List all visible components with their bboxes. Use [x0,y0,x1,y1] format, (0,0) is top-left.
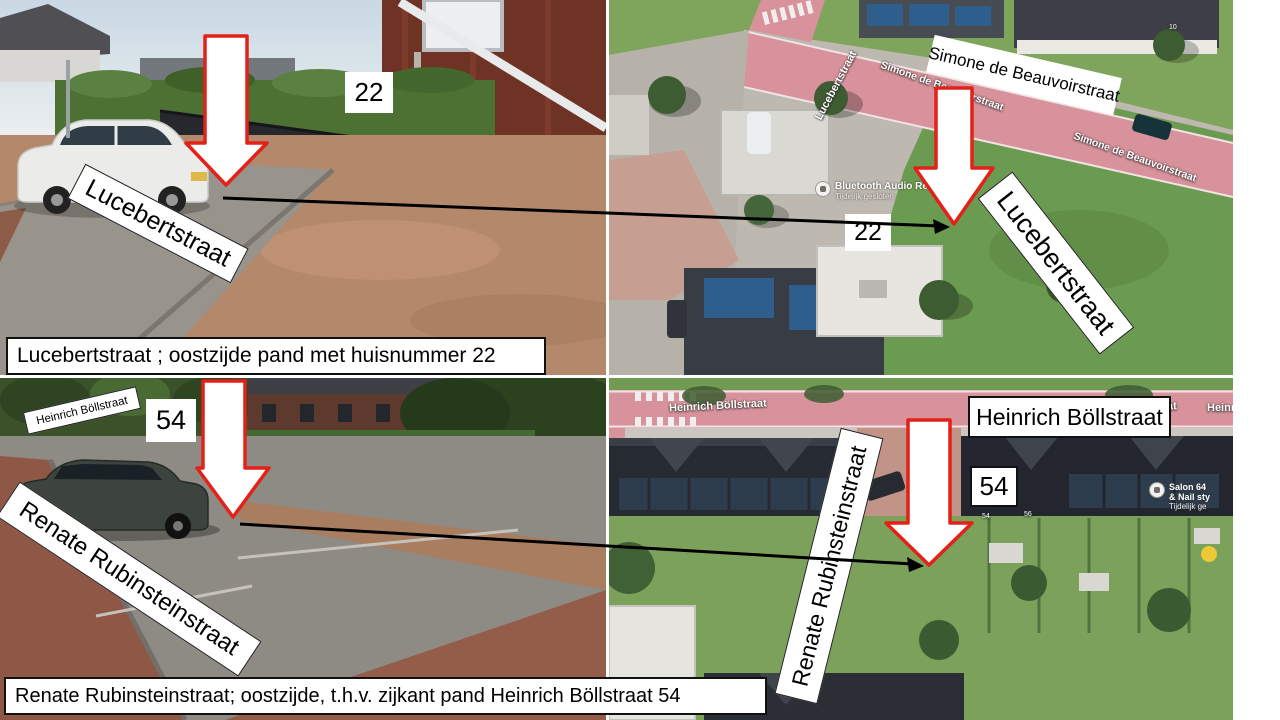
caption-top: Lucebertstraat ; oostzijde pand met huis… [6,337,546,375]
long-roof-left [609,438,857,516]
lamppost [66,60,70,138]
map-roof-number-56: 56 [1024,511,1032,518]
map-poi-salon: Salon 64 & Nail sty Tijdelijk ge [1149,482,1210,511]
house-number-label-22-photo: 22 [345,72,393,113]
place-icon [815,181,831,197]
house-number-label-54-photo: 54 [146,399,196,442]
house-number-label-54-map: 54 [970,466,1018,507]
poi-name: Bluetooth Audio Re [835,181,928,192]
annotated-location-figure: Lucebertstraat Simone de Beauvoirstraat … [0,0,1280,720]
street-name-label-heinrich-bollstraat-map: Heinrich Böllstraat [968,396,1171,438]
map-roof-number-54: 54 [982,513,990,520]
map-roof-number: 10 [1169,24,1177,31]
aerial-map-lucebertstraat: Lucebertstraat Simone de Beauvoirstraat … [609,0,1233,375]
poi-status: Tijdelijk ge [1169,502,1210,511]
yellow-parasol [1201,546,1217,562]
poi-name-line1: Salon 64 [1169,482,1210,492]
map-poi-bluetooth-audio: Bluetooth Audio Re Tijdelijk gesloten [815,181,928,201]
house-number-label-22-map: 22 [845,214,891,251]
poi-name-line2: & Nail sty [1169,492,1210,502]
place-icon [1149,482,1165,498]
poi-status: Tijdelijk gesloten [835,192,928,201]
map-street-label-heinrich-3: Heinrich Böllstraat [1207,402,1233,414]
caption-bottom: Renate Rubinsteinstraat; oostzijde, t.h.… [4,677,767,715]
